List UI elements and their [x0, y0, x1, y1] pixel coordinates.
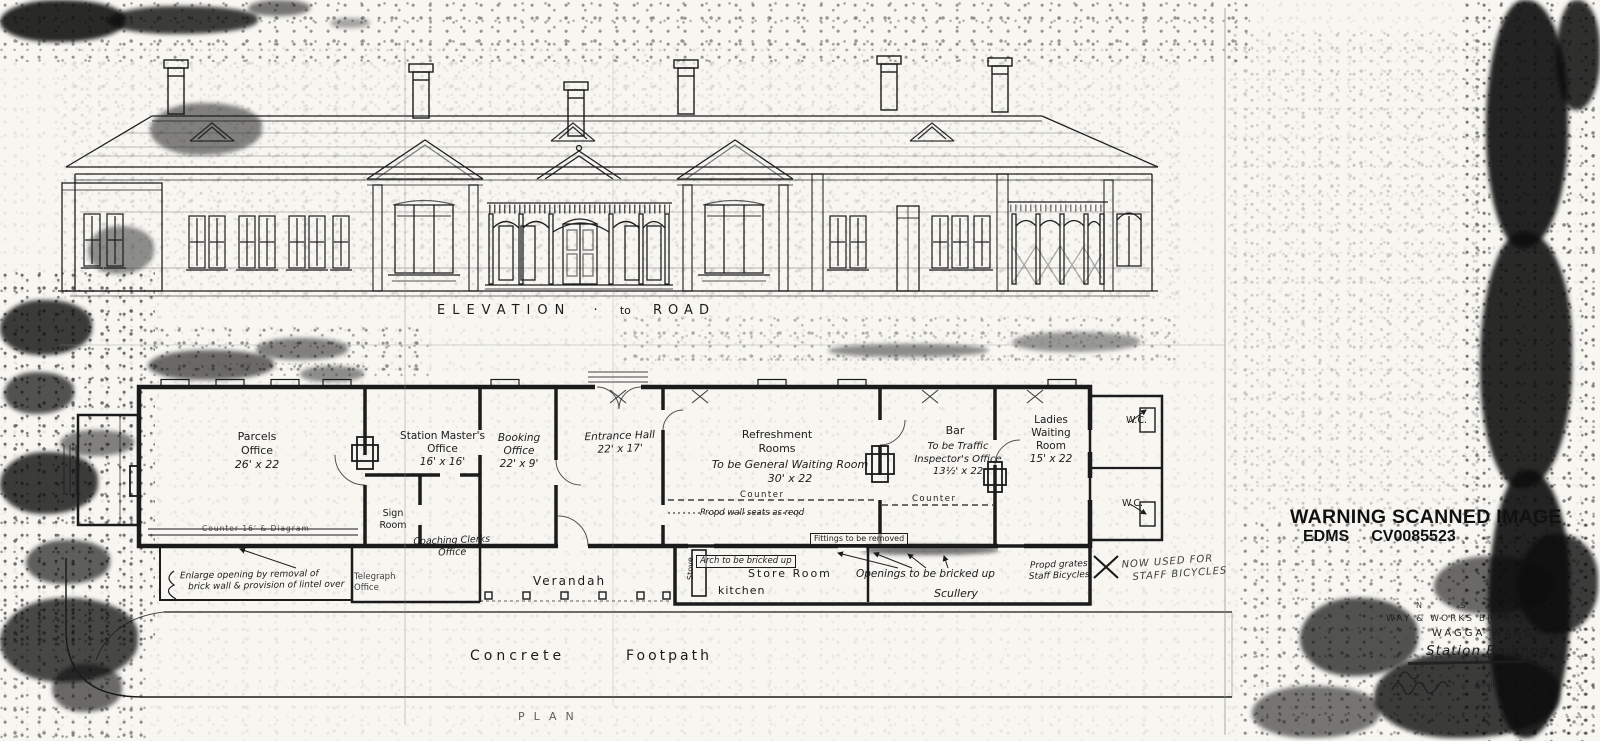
edms-label: EDMS: [1303, 527, 1349, 547]
room-note-line: To be General Waiting Room: [700, 458, 880, 472]
room-label-coaching-clerks-office: Coaching Clerks Office: [406, 533, 499, 560]
room-dims: 22' x 9': [483, 458, 555, 471]
room-label-parcels-office: Parcels Office 26' x 22: [212, 430, 302, 471]
plan-caption: PLAN: [518, 710, 583, 724]
title-block-line-nsw: N S W: [1416, 601, 1530, 611]
room-name-line: Parcels: [212, 430, 302, 444]
room-note-general-waiting-room: To be General Waiting Room 30' x 22: [700, 458, 880, 486]
footpath-caption: Concrete Footpath: [470, 648, 712, 666]
room-name-line: Office: [483, 445, 555, 458]
room-label-scullery: Scullery: [934, 587, 978, 601]
elevation-drawing: [58, 56, 1158, 296]
room-label-verandah: Verandah: [533, 574, 606, 589]
annotation-fittings-to-be-removed: Fittings to be removed: [810, 533, 908, 545]
illegible-handwriting: [1392, 672, 1448, 695]
elevation-caption: ELEVATION · to ROAD: [437, 303, 715, 319]
room-label-sign-room: Sign Room: [373, 508, 413, 532]
room-name-line: Refreshment: [722, 428, 832, 442]
room-name-line: Telegraph: [354, 572, 395, 583]
room-label-kitchen: kitchen: [718, 584, 766, 598]
room-name-line: Waiting: [1018, 427, 1084, 440]
elevation-caption-word: ELEVATION: [437, 303, 571, 319]
room-name-line: Room: [1018, 440, 1084, 453]
room-name-line: Ladies: [1018, 414, 1084, 427]
room-dims: 15' x 22: [1018, 453, 1084, 466]
warning-stamp: WARNING SCANNED IMAGE: [1290, 505, 1562, 529]
elevation-caption-dot: ·: [594, 303, 598, 319]
title-block-line-branch: WAY & WORKS BRANCH: [1386, 614, 1529, 625]
annotation-openings-to-be-bricked-up: Openings to be bricked up: [856, 568, 995, 581]
room-label-ladies-waiting-room: Ladies Waiting Room 15' x 22: [1018, 414, 1084, 467]
elevation-caption-road: ROAD: [653, 303, 715, 319]
room-note-line: Inspector's Office: [903, 454, 1013, 467]
room-label-entrance-hall: Entrance Hall 22' x 17': [570, 428, 671, 458]
title-block-line-scale: Scale:: [1476, 680, 1500, 690]
footpath-word-1: Concrete: [470, 648, 565, 666]
annotation-counter-refreshment: Counter: [740, 490, 784, 501]
room-dims: 26' x 22: [212, 458, 302, 472]
room-name-line: Room: [373, 520, 413, 532]
annotation-counter-bar: Counter: [912, 494, 956, 505]
footpath-word-2: Footpath: [626, 648, 712, 666]
edms-number: CV0085523: [1371, 527, 1456, 547]
room-label-bar: Bar: [935, 424, 975, 438]
room-note-line: To be Traffic: [903, 441, 1013, 454]
room-name-line: Booking: [483, 432, 555, 445]
room-dims: 13½' x 22: [903, 466, 1013, 479]
room-label-telegraph-office: Telegraph Office: [354, 572, 395, 593]
annotation-enlarge-opening: Enlarge opening by removal of brick wall…: [180, 569, 345, 594]
room-label-wc-upper: W.C.: [1126, 415, 1147, 427]
room-note-traffic-inspectors-office: To be Traffic Inspector's Office 13½' x …: [903, 441, 1013, 479]
edms-stamp: EDMS CV0085523: [1303, 527, 1456, 547]
title-block-line-wagga: WAGGA WAGGA: [1432, 628, 1545, 641]
drawing-linework: [0, 0, 1600, 741]
room-name-line: Office: [212, 444, 302, 458]
room-name-line: Sign: [373, 508, 413, 520]
annotation-wall-seats: Propd wall seats as reqd: [700, 508, 804, 519]
annotation-arch-to-be-bricked-up: Arch to be bricked up: [696, 555, 796, 568]
room-label-wc-lower: W.C.: [1122, 498, 1143, 510]
room-label-refreshment-rooms: Refreshment Rooms: [722, 428, 832, 456]
scanned-drawing-sheet: ELEVATION · to ROAD Parcels Office 26' x…: [0, 0, 1600, 741]
room-label-stove: Stove: [686, 557, 696, 580]
title-block-line-station-building: Station Building: [1426, 643, 1549, 660]
room-name-line: Rooms: [722, 442, 832, 456]
room-name-line: Office: [354, 583, 395, 594]
annotation-staff-bicycles: Propd grates Staff Bicycles: [1024, 559, 1095, 584]
annotation-counter-parcels: Counter 16' & Diagram: [202, 524, 310, 533]
elevation-caption-to: to: [620, 304, 631, 318]
room-dims: 30' x 22: [700, 472, 880, 486]
room-label-booking-office: Booking Office 22' x 9': [483, 432, 555, 471]
room-label-store-room: Store Room: [748, 567, 832, 581]
room-name-line: Bar: [935, 424, 975, 438]
